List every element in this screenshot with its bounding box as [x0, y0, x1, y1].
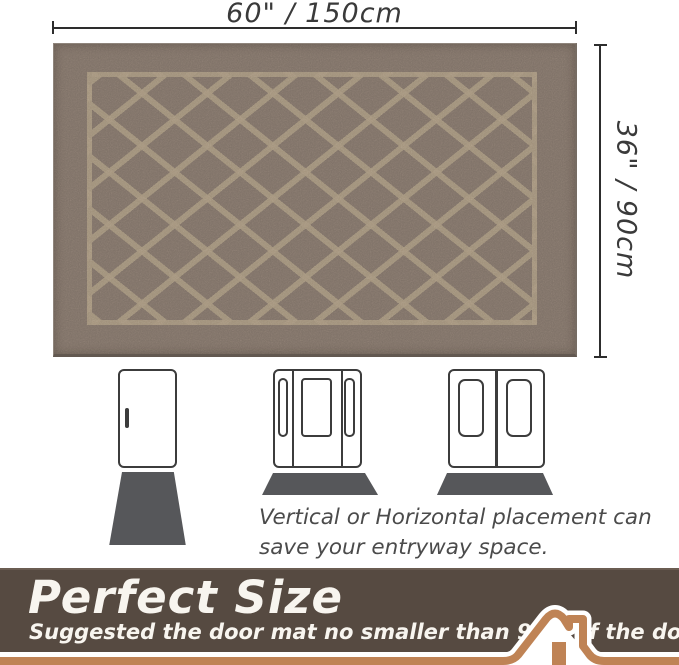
door-frame-line [341, 371, 344, 466]
door-window-icon [301, 378, 332, 437]
height-dimension-line [599, 45, 601, 358]
height-dimension-label: 36" / 90cm [611, 121, 642, 280]
horizontal-mat-illustration [433, 473, 557, 495]
height-dimension-tick-bottom [594, 356, 607, 358]
door-handle-icon [125, 408, 129, 428]
sidelight-window-icon [344, 378, 355, 437]
width-dimension-line [53, 27, 576, 29]
horizontal-mat-illustration [258, 473, 380, 495]
sidelight-window-icon [278, 378, 288, 437]
height-dimension-tick-top [594, 44, 607, 46]
door-with-sidelights-illustration [273, 369, 362, 468]
door-frame-line [292, 371, 295, 466]
house-icon [475, 595, 635, 665]
house-door-icon [552, 642, 566, 665]
door-window-icon [458, 379, 484, 437]
product-infographic: 60" / 150cm 36" / 90cm [0, 0, 679, 665]
door-window-icon [506, 379, 532, 437]
carpet-texture [54, 44, 575, 354]
double-door-illustration [448, 369, 545, 468]
width-dimension-tick-left [52, 21, 54, 34]
single-door-illustration [118, 369, 177, 468]
banner-title: Perfect Size [28, 576, 343, 620]
placement-note: Vertical or Horizontal placement can sav… [259, 503, 652, 563]
placement-note-line2: save your entryway space. [259, 533, 652, 563]
vertical-mat-illustration [105, 472, 190, 545]
door-frame-line [495, 371, 498, 466]
placement-note-line1: Vertical or Horizontal placement can [259, 503, 652, 533]
width-dimension-label: 60" / 150cm [53, 0, 576, 29]
door-mat-photo [53, 43, 577, 357]
width-dimension-tick-right [575, 21, 577, 34]
